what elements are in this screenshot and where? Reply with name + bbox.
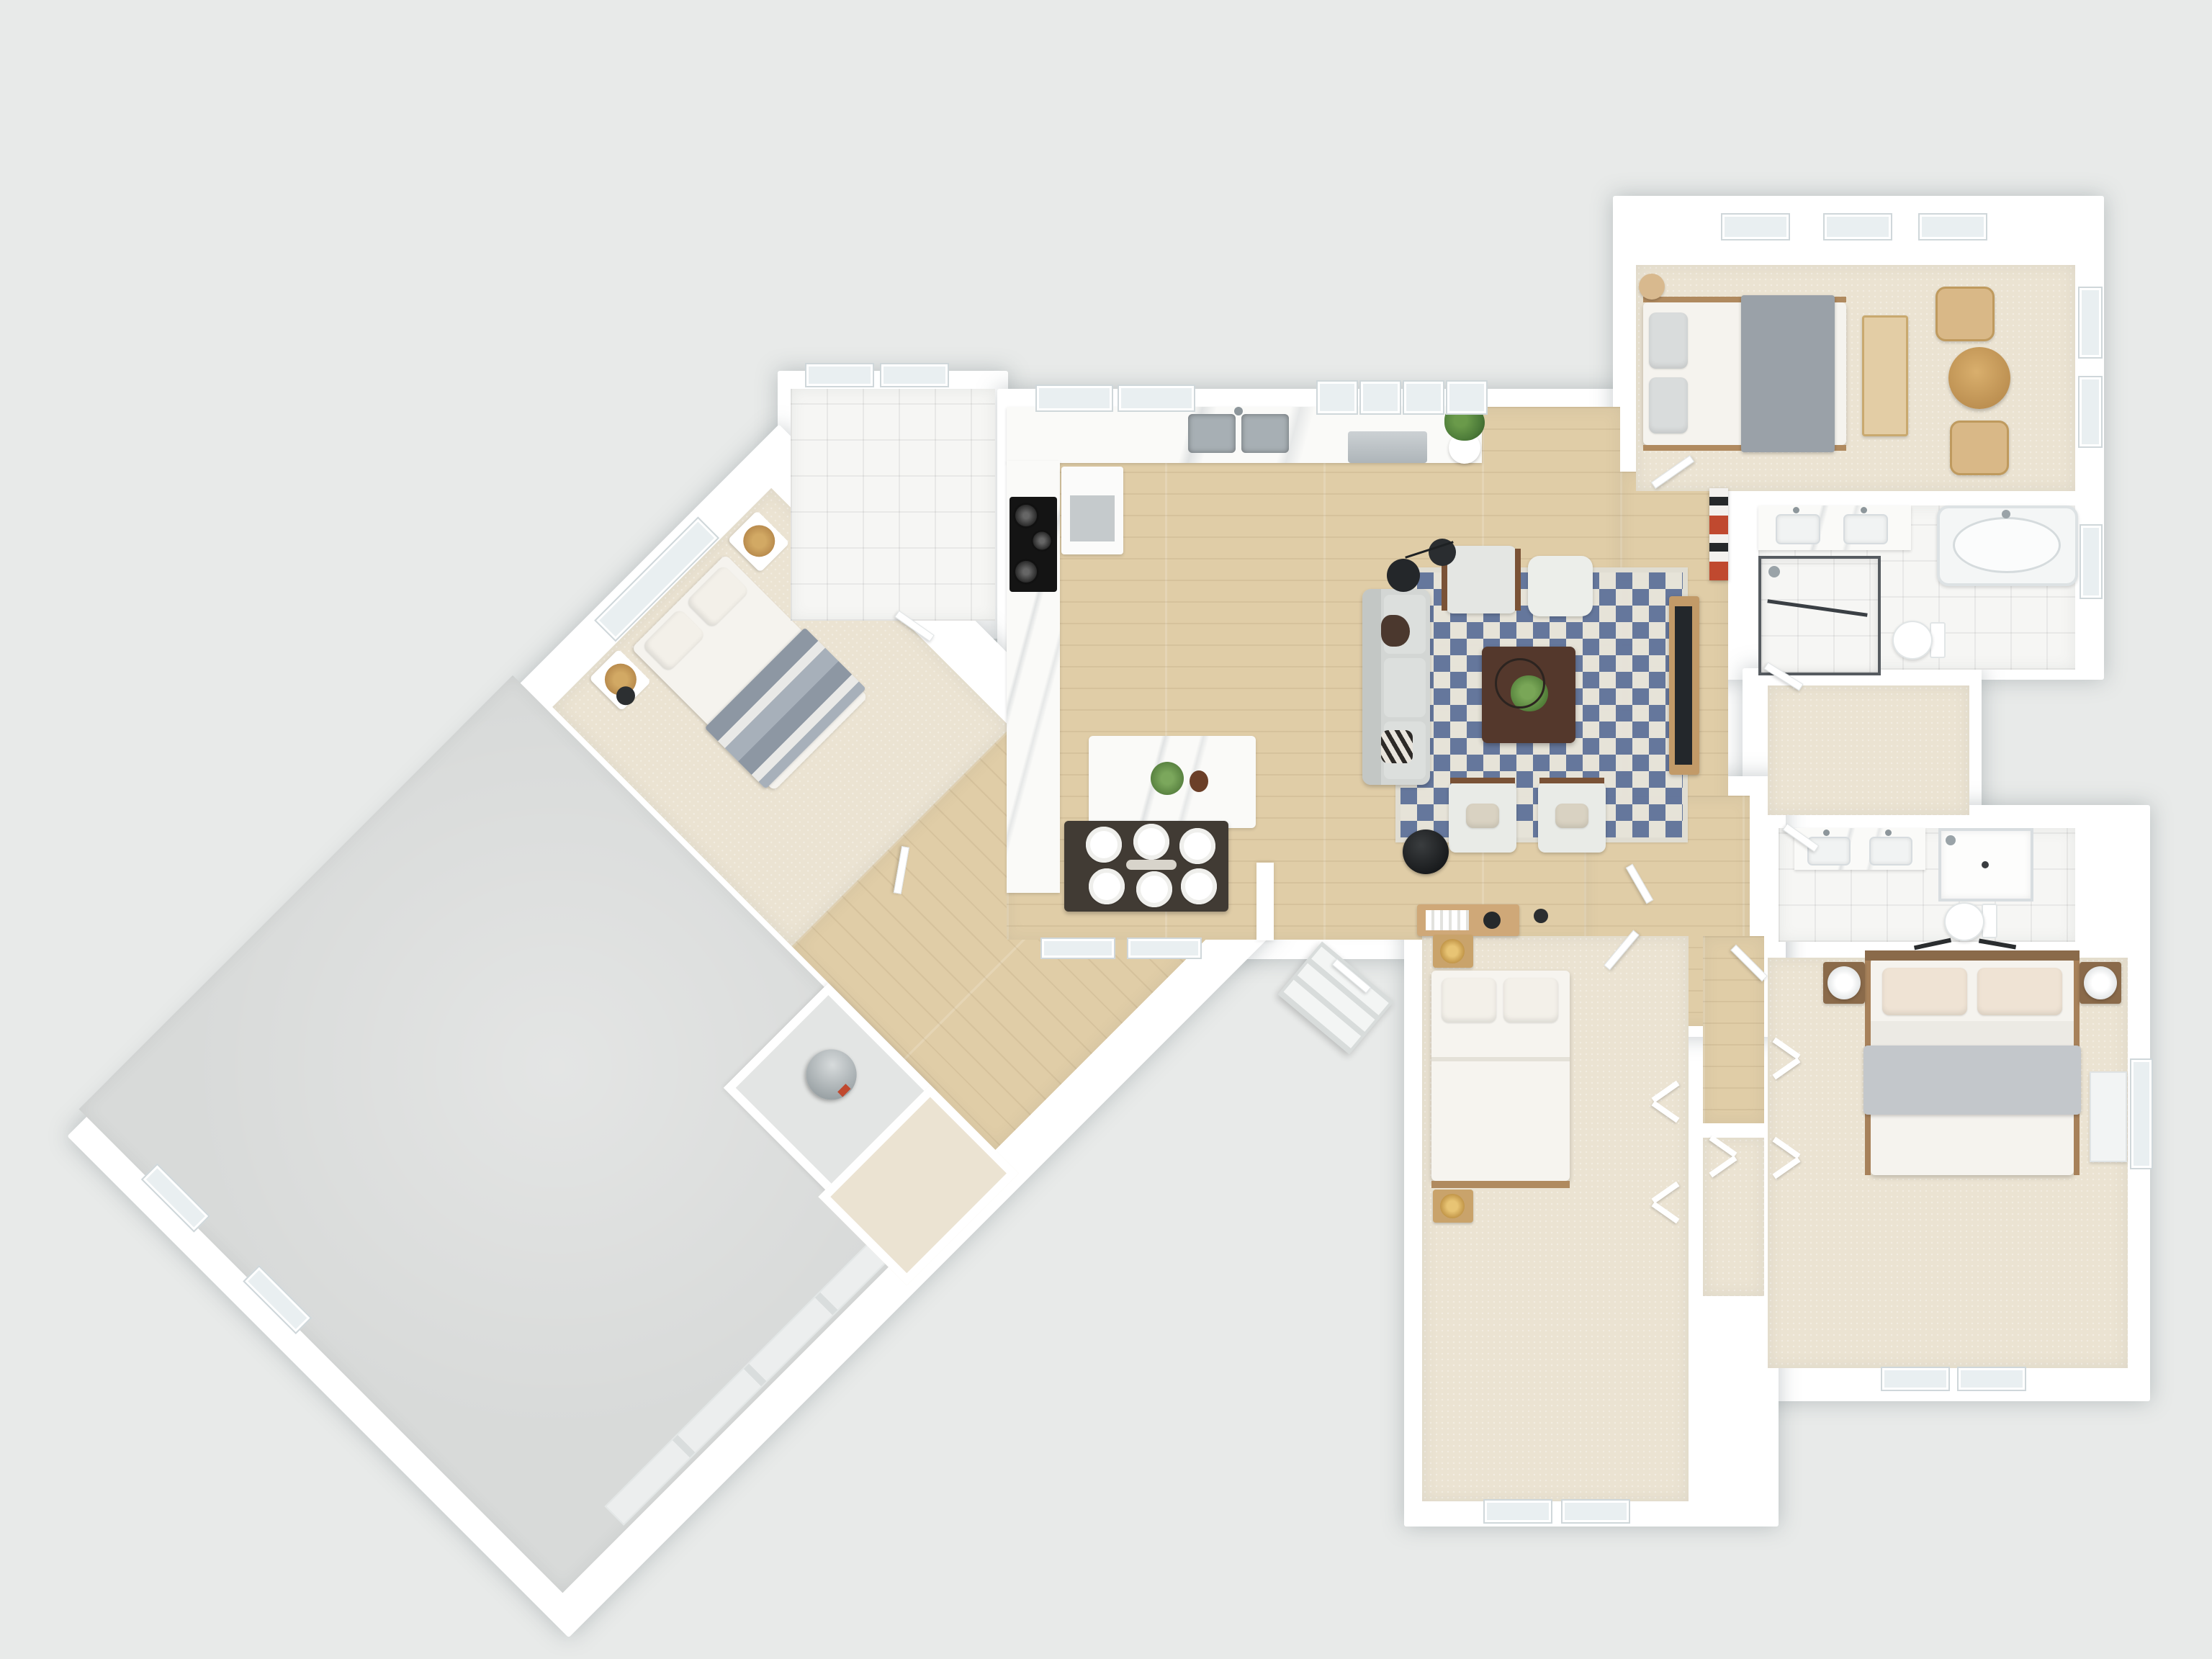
accent-armchair xyxy=(1449,782,1516,853)
bedroom4-bottom-window xyxy=(1561,1499,1630,1524)
island-bowl xyxy=(1190,770,1208,792)
bathtub-basin-oval xyxy=(1953,517,2061,573)
blanket-gray xyxy=(1863,1046,2081,1115)
bed-frame-wood xyxy=(1431,1181,1570,1188)
water-heater xyxy=(796,1039,867,1110)
toilet2 xyxy=(1944,900,1996,940)
lamp-shade-black xyxy=(1387,559,1420,592)
toilet-bowl xyxy=(1892,621,1933,660)
pillow-cream xyxy=(1977,968,2062,1015)
bedroom1-bed xyxy=(1643,302,1846,445)
pillow-gray xyxy=(1649,377,1688,433)
bedroom4-bottom-window xyxy=(1483,1499,1552,1524)
kitchen-sink-basin xyxy=(1241,414,1289,453)
throw-pillow-brown xyxy=(1381,615,1410,647)
black-round-decor xyxy=(1483,912,1501,929)
white-dresser xyxy=(2090,1071,2127,1162)
patio-sliding-door xyxy=(1359,380,1401,415)
bedroom3-bottom-window xyxy=(1957,1367,2026,1391)
island-plant xyxy=(1151,762,1184,795)
shower-head xyxy=(1768,566,1780,577)
bedroom3-bottom-window xyxy=(1881,1367,1950,1391)
coffee-table xyxy=(1482,647,1575,743)
plate xyxy=(1133,824,1169,860)
bedroom1-window xyxy=(1721,213,1790,240)
sofa xyxy=(1362,589,1430,785)
duvet-fold xyxy=(1431,1057,1570,1061)
nightstand xyxy=(2080,962,2121,1004)
table-runner-decor xyxy=(1126,860,1177,870)
gold-lamp xyxy=(1440,1194,1465,1218)
plate xyxy=(1136,871,1172,907)
vanity-sink xyxy=(1869,837,1912,866)
vanity-sink xyxy=(1843,514,1888,544)
closet1-floor xyxy=(1768,685,1969,815)
fridge xyxy=(1061,467,1123,554)
kitchen-island xyxy=(1089,736,1256,828)
books xyxy=(1426,910,1469,930)
red-accent-shelf xyxy=(1709,488,1728,580)
patio-sliding-door xyxy=(1403,380,1444,415)
toilet-bowl xyxy=(1944,902,1984,941)
stove-burner xyxy=(1013,503,1039,529)
shower-glass-bar xyxy=(1767,599,1867,616)
armchair-pillow xyxy=(1555,804,1588,828)
kitchen-window xyxy=(1035,385,1113,412)
armchair-frame-wood xyxy=(1539,778,1604,783)
plate xyxy=(1181,868,1217,904)
bedroom1-window xyxy=(1823,213,1892,240)
dining-window xyxy=(1127,938,1202,959)
kitchen-sink-basin xyxy=(1188,414,1236,453)
stove-burner xyxy=(1031,530,1053,552)
armchair-arm-wood xyxy=(1515,549,1521,611)
entry-console xyxy=(1417,904,1519,936)
pillow-gray xyxy=(1649,313,1688,369)
dining-table xyxy=(1064,821,1228,912)
nightstand xyxy=(1823,962,1865,1004)
tub-faucet xyxy=(2002,510,2010,518)
cooktop-stove xyxy=(1010,497,1057,592)
plate xyxy=(1086,827,1122,863)
dishwasher xyxy=(1348,431,1427,463)
headboard-wood xyxy=(1865,950,2080,961)
faucet xyxy=(1861,507,1867,513)
rattan-chair xyxy=(1950,421,2009,475)
pillow-cream xyxy=(1882,968,1967,1015)
tv-screen xyxy=(1675,606,1692,765)
faucet xyxy=(1823,829,1830,836)
bedroom1-dresser xyxy=(1639,274,1665,300)
wall-stub-dining xyxy=(1256,863,1274,940)
bedroom1-window xyxy=(1918,213,1987,240)
faucet xyxy=(1793,507,1799,513)
arc-floor-lamp xyxy=(1387,534,1466,592)
vanity-sink xyxy=(1776,514,1820,544)
white-cylinder-lamp xyxy=(2084,966,2117,999)
fridge-front xyxy=(1070,495,1115,541)
throw-pillow-zebra xyxy=(1381,730,1413,763)
pillow xyxy=(1442,978,1496,1022)
accent-armchair xyxy=(1538,782,1606,853)
rattan-bench xyxy=(1862,315,1908,436)
bedroom4-bed xyxy=(1431,971,1570,1181)
patio-sliding-door xyxy=(1446,380,1488,415)
laundry-window xyxy=(880,363,949,387)
pillow xyxy=(1503,978,1558,1022)
shower-head xyxy=(1946,835,1956,845)
kitchen-window xyxy=(1118,385,1195,412)
vase-decor xyxy=(1534,909,1548,923)
blanket-gray xyxy=(1741,295,1835,452)
laundry-floor xyxy=(791,389,995,621)
white-cylinder-lamp xyxy=(1827,966,1861,999)
shower-drain xyxy=(1982,861,1989,868)
faucet xyxy=(1234,407,1243,415)
rattan-chair xyxy=(1935,287,1995,341)
sofa-back xyxy=(1362,589,1381,785)
kitchen-counter-left xyxy=(1007,461,1060,893)
bedroom1-side-window xyxy=(2078,287,2103,359)
laundry-window xyxy=(805,363,874,387)
bath1-window xyxy=(2080,524,2103,599)
bath1-vanity xyxy=(1758,505,1911,550)
nightstand xyxy=(1433,1190,1473,1223)
shower2 xyxy=(1938,828,2033,902)
floor-plan-render xyxy=(0,0,2212,1659)
armchair-pillow xyxy=(1466,804,1499,828)
ottoman xyxy=(1528,556,1593,616)
dining-window xyxy=(1040,938,1115,959)
plate xyxy=(1089,868,1125,904)
bedroom3-side-window xyxy=(2130,1058,2153,1169)
toilet xyxy=(1892,618,1944,660)
bedroom3-bed xyxy=(1871,959,2074,1175)
armchair-frame-wood xyxy=(1450,778,1515,783)
gold-lamp xyxy=(1440,939,1465,963)
faucet xyxy=(1885,829,1892,836)
nightstand xyxy=(1433,935,1473,968)
decor-ring xyxy=(1495,658,1545,709)
shower xyxy=(1758,556,1881,675)
round-side-table-black xyxy=(1403,829,1449,874)
kitchen-counter-top xyxy=(1007,407,1482,463)
patio-sliding-door xyxy=(1316,380,1358,415)
bedroom1-side-window xyxy=(2078,376,2103,448)
tv-console-wood xyxy=(1669,596,1699,775)
sofa-cushion xyxy=(1384,658,1426,717)
bathtub xyxy=(1937,505,2078,586)
round-wood-table xyxy=(1948,347,2010,409)
plate xyxy=(1179,828,1215,864)
stove-burner xyxy=(1013,559,1039,585)
